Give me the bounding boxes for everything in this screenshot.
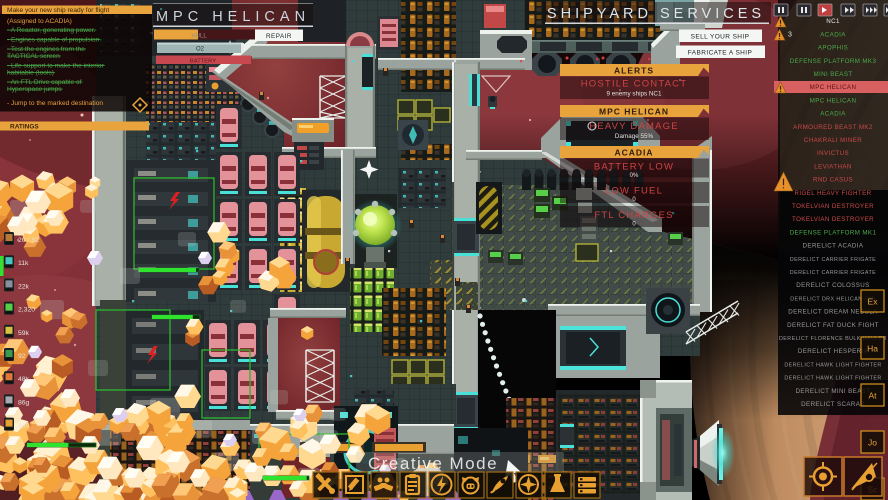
svg-text:LOW FUEL: LOW FUEL <box>605 186 663 197</box>
svg-text:- Jump to the marked destinati: - Jump to the marked destination <box>7 100 103 107</box>
svg-text:Jo: Jo <box>868 438 877 448</box>
svg-text:DERELICT FAT DUCK FIGHT: DERELICT FAT DUCK FIGHT <box>787 322 879 329</box>
svg-text:CHAKRALI MINER: CHAKRALI MINER <box>804 137 862 144</box>
svg-text:Ha: Ha <box>867 344 878 354</box>
svg-text:TACTICAL screen: TACTICAL screen <box>7 53 60 60</box>
svg-text:DERELICT HAWK LIGHT FIGHTER: DERELICT HAWK LIGHT FIGHTER <box>784 376 881 382</box>
svg-text:INVICTUS: INVICTUS <box>817 150 849 157</box>
svg-text:HULL: HULL <box>191 34 207 40</box>
svg-text:NC1: NC1 <box>826 18 840 25</box>
svg-text:DERELICT COLOSSUS: DERELICT COLOSSUS <box>796 282 869 289</box>
svg-text:DERELICT SCARAB: DERELICT SCARAB <box>801 401 865 408</box>
svg-text:ACADIA: ACADIA <box>820 111 846 118</box>
svg-text:O2: O2 <box>196 47 205 53</box>
svg-text:DEFENSE PLATFORM MK1: DEFENSE PLATFORM MK1 <box>790 229 877 236</box>
svg-text:Ex: Ex <box>868 297 879 307</box>
svg-text:DERELICT ACADIA: DERELICT ACADIA <box>803 243 864 250</box>
svg-text:92: 92 <box>18 353 26 360</box>
svg-text:APOPHIS: APOPHIS <box>818 45 848 52</box>
svg-text:DERELICT MINI BEAST: DERELICT MINI BEAST <box>796 388 871 395</box>
svg-text:- Engines capable of propulsio: - Engines capable of propulsion <box>7 37 100 44</box>
svg-text:DERELICT HESPERIA: DERELICT HESPERIA <box>798 348 869 355</box>
svg-text:3: 3 <box>788 32 792 39</box>
svg-text:11k: 11k <box>18 260 29 267</box>
svg-text:22k: 22k <box>18 283 30 290</box>
svg-text:ACADIA: ACADIA <box>820 31 846 38</box>
svg-text:ARMOURED BEAST MK2: ARMOURED BEAST MK2 <box>793 124 873 131</box>
svg-text:0%: 0% <box>630 173 639 179</box>
svg-text:Make your new ship ready for f: Make your new ship ready for flight <box>7 7 109 14</box>
svg-text:RIGEL HEAVY FIGHTER: RIGEL HEAVY FIGHTER <box>795 190 872 197</box>
svg-text:FABRICATE A SHIP: FABRICATE A SHIP <box>688 50 752 57</box>
svg-text:20 / 32: 20 / 32 <box>18 237 39 244</box>
svg-text:DERELICT HAWK LIGHT FIGHTER: DERELICT HAWK LIGHT FIGHTER <box>784 362 881 368</box>
svg-text:48k: 48k <box>18 376 30 383</box>
svg-text:DEFENSE PLATFORM MK3: DEFENSE PLATFORM MK3 <box>790 58 877 65</box>
svg-text:MPC HELICAN: MPC HELICAN <box>810 84 857 91</box>
svg-text:MPC HELICAN: MPC HELICAN <box>599 107 669 117</box>
svg-text:MINI BEAST: MINI BEAST <box>813 71 852 78</box>
svg-text:MPC HELICAN: MPC HELICAN <box>156 9 310 25</box>
svg-text:(Assigned to ACADIA): (Assigned to ACADIA) <box>7 18 72 25</box>
svg-text:ALERTS: ALERTS <box>614 66 654 76</box>
svg-text:ACADIA: ACADIA <box>614 148 653 158</box>
svg-text:- An FTL Drive capable of: - An FTL Drive capable of <box>7 79 82 86</box>
svg-text:RND CASUS: RND CASUS <box>813 177 853 184</box>
svg-text:TOKELVIAN DESTROYER: TOKELVIAN DESTROYER <box>792 203 874 210</box>
svg-text:86g: 86g <box>18 399 30 406</box>
svg-text:At: At <box>868 391 877 401</box>
svg-text:RATINGS: RATINGS <box>10 124 39 131</box>
svg-text:SELL YOUR SHIP: SELL YOUR SHIP <box>691 34 750 41</box>
svg-text:LEVIATHAN: LEVIATHAN <box>814 163 852 170</box>
svg-text:HOSTILE CONTACT: HOSTILE CONTACT <box>581 79 688 90</box>
svg-text:Damage 55%: Damage 55% <box>615 133 654 140</box>
svg-text:MPC HELICAN: MPC HELICAN <box>810 97 857 104</box>
svg-text:- A Reactor, generating power.: - A Reactor, generating power. <box>7 27 96 34</box>
svg-text:BATTERY LOW: BATTERY LOW <box>594 162 674 173</box>
svg-text:habitable (tools): habitable (tools) <box>7 70 54 77</box>
svg-text:DERELICT CARRIER FRIGATE: DERELICT CARRIER FRIGATE <box>790 270 876 276</box>
svg-text:- Test the engines from the: - Test the engines from the <box>7 46 85 53</box>
svg-text:480: 480 <box>18 423 30 430</box>
svg-text:2,320: 2,320 <box>18 307 35 314</box>
svg-text:TOKELVIAN DESTROYER: TOKELVIAN DESTROYER <box>792 216 874 223</box>
svg-text:HEAVY DAMAGE: HEAVY DAMAGE <box>589 121 679 132</box>
svg-text:BATTERY: BATTERY <box>190 59 216 65</box>
svg-text:FTL CHARGES: FTL CHARGES <box>594 210 673 221</box>
svg-text:SHIPYARD SERVICES: SHIPYARD SERVICES <box>547 6 765 22</box>
svg-text:59k: 59k <box>18 330 30 337</box>
svg-text:9 enemy ships NC1: 9 enemy ships NC1 <box>607 91 662 98</box>
svg-text:REPAIR: REPAIR <box>266 33 292 40</box>
svg-text:Hyperspace jumps: Hyperspace jumps <box>7 86 62 93</box>
svg-text:- Life support to make the int: - Life support to make the interior <box>7 63 105 70</box>
svg-text:DERELICT CARRIER FRIGATE: DERELICT CARRIER FRIGATE <box>790 257 876 263</box>
